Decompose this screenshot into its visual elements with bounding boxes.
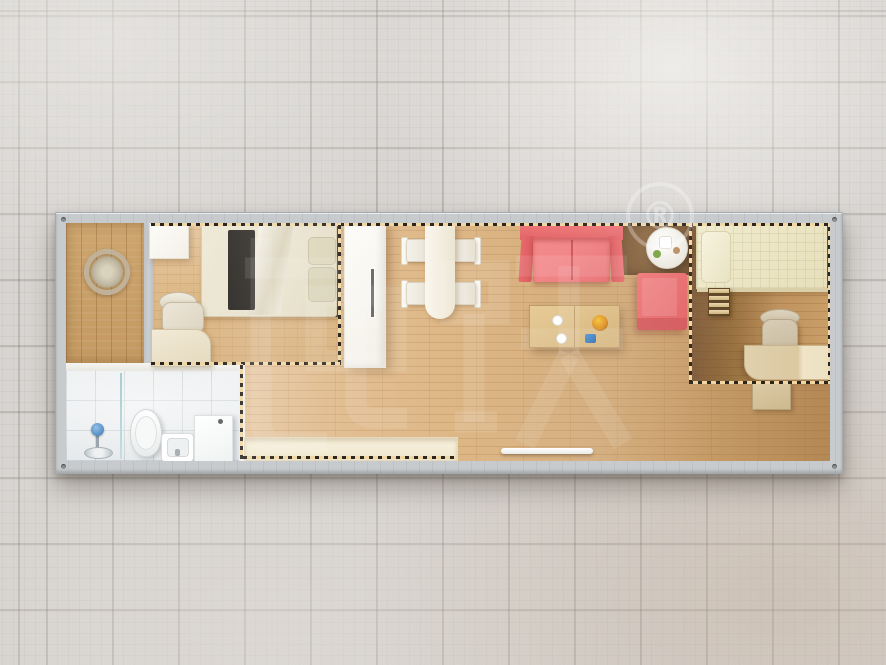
partition-dash-top [151, 223, 691, 226]
partition-dash-bedroom2-right [828, 223, 830, 384]
washer-knob [218, 419, 223, 424]
sofa [520, 224, 623, 282]
small-plant [653, 250, 661, 258]
table-seam [574, 306, 575, 347]
coffee-table [529, 305, 620, 348]
decor-wreath [84, 249, 130, 295]
wardrobe-handle [371, 269, 374, 317]
dark-bed-runner [228, 230, 255, 310]
pillow [308, 237, 336, 265]
shower-head [91, 423, 104, 436]
basin-tap [175, 449, 180, 456]
toilet-seat [135, 416, 157, 450]
sofa-armrest [608, 236, 624, 282]
bedroom1-bed [201, 223, 341, 317]
showroom-scene: ® [0, 0, 886, 665]
partition-dash-hall-left [240, 364, 243, 459]
partition-dash-counter [243, 456, 455, 459]
ladder-rung [709, 296, 729, 300]
partition-dash-bedroom2-bottom [689, 381, 830, 384]
frame-screw [61, 217, 66, 222]
bedroom1-cabinet [149, 223, 189, 259]
wardrobe [344, 223, 386, 368]
frame-screw [832, 217, 837, 222]
door-threshold [501, 448, 593, 454]
ladder-rung [709, 289, 729, 293]
container-house [55, 212, 843, 474]
frame-screw [832, 464, 837, 469]
dining-table [425, 223, 455, 319]
armchair [637, 273, 687, 330]
pillow [308, 267, 336, 302]
partition-dash-bedroom1-right [338, 223, 341, 364]
sofa-cushion-seam [571, 240, 573, 280]
container-interior [66, 223, 830, 461]
toy-blocks [585, 334, 596, 343]
toilet [130, 409, 162, 457]
registered-symbol: ® [641, 194, 679, 238]
ladder-rung [709, 310, 729, 314]
shower-base [84, 447, 113, 459]
registered-trademark-watermark: ® [626, 182, 694, 250]
pillow [701, 231, 731, 283]
step-ladder [708, 288, 730, 316]
washing-machine [194, 415, 233, 461]
cup [557, 334, 566, 343]
shower-glass-screen [120, 373, 122, 459]
coaster [553, 316, 562, 325]
armchair-front [637, 318, 687, 330]
partition-dash-bedroom1-bottom [151, 362, 341, 365]
wash-basin [161, 433, 194, 461]
partition-dash-bedroom2-top [689, 223, 830, 226]
fruit-bowl [592, 315, 608, 331]
small-dish [673, 247, 680, 254]
armchair-cushion [642, 278, 677, 316]
frame-screw [61, 464, 66, 469]
bedroom2-desk [744, 345, 830, 380]
ladder-rung [709, 303, 729, 307]
bedroom2-bed [696, 225, 830, 289]
partition-dash-bedroom2-left [689, 223, 692, 384]
bedroom2-cabinet [752, 383, 791, 410]
